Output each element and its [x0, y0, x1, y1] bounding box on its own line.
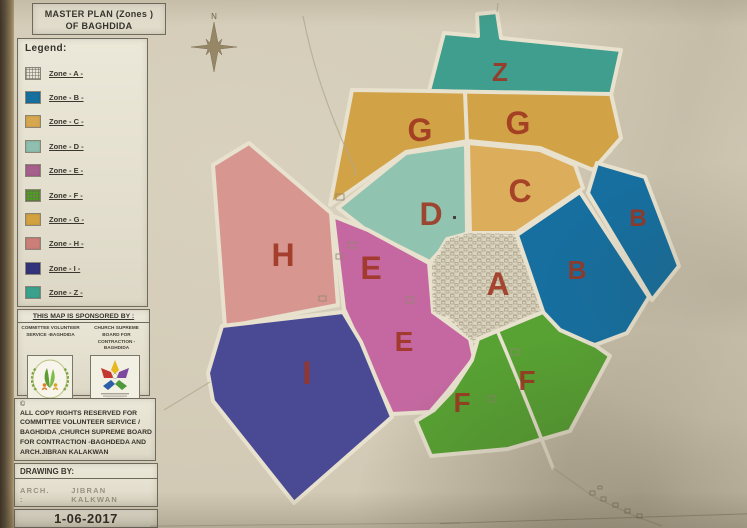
copyright-line: ARCH.JIBRAN KALAKWAN: [20, 448, 152, 458]
zone-label-g2: G: [506, 105, 531, 141]
zone-label-a: A: [486, 266, 509, 302]
legend-label: Zone - G -: [49, 215, 84, 224]
zone-label-g1: G: [408, 112, 433, 148]
zone-label-h: H: [271, 237, 294, 273]
copyright-line: ALL COPY RIGHTS RESERVED FOR: [20, 409, 152, 419]
copyright-icon: ©: [20, 401, 152, 409]
copyright-line: BAGHDIDA ,CHURCH SUPREME BOARD: [20, 428, 152, 438]
zone-h-color-chip: [25, 237, 41, 250]
volunteer-committee-logo-icon: [31, 358, 69, 400]
legend-label: Zone - B -: [49, 93, 84, 102]
map-title-line1: MASTER PLAN (Zones ): [33, 8, 165, 20]
map-title-line2: OF BAGHDIDA: [33, 20, 165, 32]
legend-label: Zone - I -: [49, 264, 80, 273]
legend: Legend: Zone - A - Zone - B - Zone - C -…: [17, 38, 148, 307]
zone-d-color-chip: [25, 140, 41, 153]
architect-name: JIBRAN KALKWAN: [71, 486, 153, 504]
sponsor-heading: THIS MAP IS SPONSORED BY :: [18, 310, 149, 323]
sponsor-logos: [18, 354, 149, 403]
zone-label-c: C: [508, 173, 531, 209]
legend-label: Zone - A -: [49, 69, 83, 78]
compass-rose-icon: N: [191, 12, 237, 72]
volunteer-committee-logo: [27, 355, 73, 403]
zone-i-color-chip: [25, 262, 41, 275]
master-plan-photo: N Z G G C D H E E A B B I F F MASTER PLA…: [0, 0, 747, 528]
legend-item-zone-g: Zone - G -: [25, 207, 147, 231]
copyright-section: © ALL COPY RIGHTS RESERVED FOR COMMITTEE…: [14, 398, 156, 461]
compass-north-label: N: [211, 12, 217, 21]
legend-heading: Legend:: [25, 43, 147, 54]
church-board-logo-icon: [94, 358, 136, 400]
zone-label-z: Z: [492, 57, 508, 87]
legend-item-zone-i: Zone - I -: [25, 256, 147, 280]
legend-item-zone-e: Zone - E -: [25, 159, 147, 183]
drawing-by-name-row: ARCH. : JIBRAN KALKWAN: [15, 479, 157, 504]
zone-label-i: I: [303, 355, 312, 391]
legend-item-zone-c: Zone - C -: [25, 110, 147, 134]
sponsor-name-committee: COMMITTEE VOLUNTEER SERVICE -BAGHDIDA: [19, 325, 82, 352]
date-section: 1-06-2017: [14, 509, 158, 528]
zone-label-e1: E: [360, 250, 381, 286]
legend-label: Zone - F -: [49, 191, 83, 200]
legend-label: Zone - C -: [49, 117, 84, 126]
zone-e-color-chip: [25, 164, 41, 177]
zone-label-e2: E: [395, 326, 414, 357]
architect-prefix: ARCH. :: [20, 486, 55, 504]
church-board-logo: [90, 355, 140, 403]
legend-item-zone-f: Zone - F -: [25, 183, 147, 207]
zone-label-f1: F: [453, 387, 470, 418]
sponsor-section: THIS MAP IS SPONSORED BY : COMMITTEE VOL…: [17, 309, 150, 396]
sponsor-names: COMMITTEE VOLUNTEER SERVICE -BAGHDIDA CH…: [18, 323, 149, 354]
map-title: MASTER PLAN (Zones ) OF BAGHDIDA: [32, 3, 166, 35]
legend-item-zone-a: Zone - A -: [25, 61, 147, 85]
zone-c-color-chip: [25, 115, 41, 128]
zone-z: [429, 12, 621, 95]
legend-label: Zone - H -: [49, 239, 84, 248]
zone-a-color-chip: [25, 67, 41, 80]
map-date: 1-06-2017: [15, 510, 157, 528]
sponsor-name-church: CHURCH SUPREME BOARD FOR CONTRACTION - B…: [85, 325, 148, 352]
drawing-by-heading: DRAWING BY:: [15, 464, 157, 479]
zone-g-color-chip: [25, 213, 41, 226]
zone-label-b2: B: [629, 205, 646, 232]
drawing-by-section: DRAWING BY: ARCH. : JIBRAN KALKWAN: [14, 463, 158, 507]
zone-b-color-chip: [25, 91, 41, 104]
legend-label: Zone - Z -: [49, 288, 83, 297]
legend-label: Zone - E -: [49, 166, 83, 175]
legend-item-zone-h: Zone - H -: [25, 232, 147, 256]
zone-label-d: D: [419, 196, 442, 232]
zone-label-f2: F: [518, 365, 535, 396]
copyright-line: COMMITTEE VOLUNTEER SERVICE /: [20, 418, 152, 428]
zone-f-color-chip: [25, 189, 41, 202]
legend-item-zone-b: Zone - B -: [25, 85, 147, 109]
legend-label: Zone - D -: [49, 142, 84, 151]
zone-z-color-chip: [25, 286, 41, 299]
zone-label-b1: B: [568, 255, 587, 285]
legend-item-zone-z: Zone - Z -: [25, 281, 147, 305]
legend-item-zone-d: Zone - D -: [25, 134, 147, 158]
copyright-line: FOR CONTRACTION -BAGHDEDA AND: [20, 438, 152, 448]
